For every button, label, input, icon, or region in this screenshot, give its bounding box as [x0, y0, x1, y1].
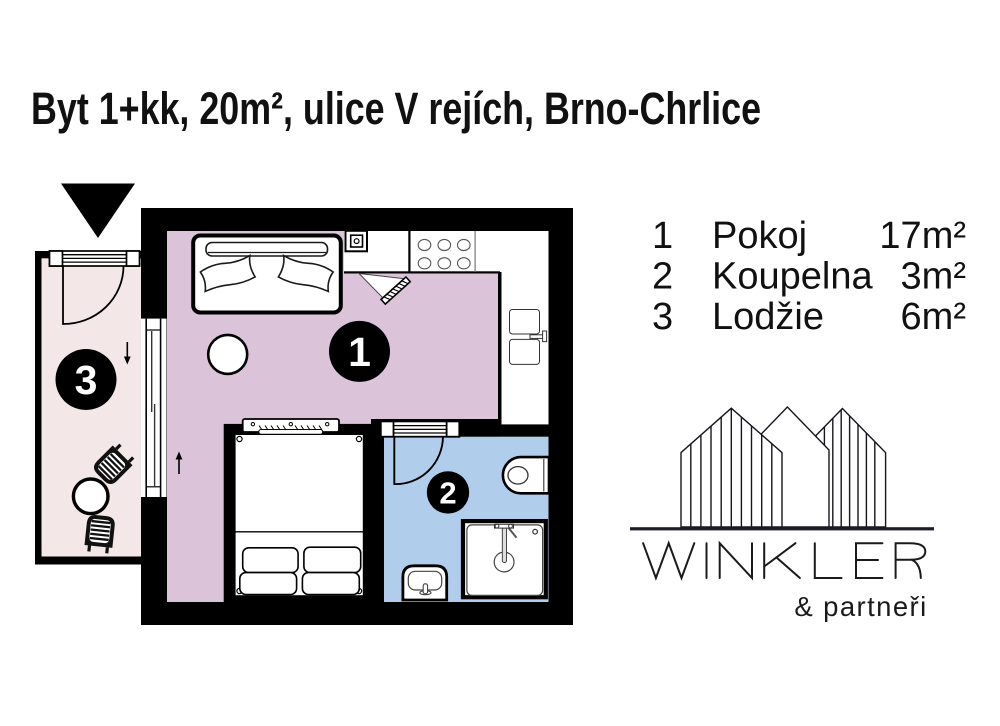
svg-text:3: 3 [75, 357, 98, 403]
svg-text:1: 1 [348, 329, 371, 375]
svg-text:Byt 1+kk, 20m², ulice V rejích: Byt 1+kk, 20m², ulice V rejích, Brno-Chr… [31, 83, 761, 134]
svg-text:2: 2 [652, 255, 673, 297]
svg-text:2: 2 [439, 476, 456, 511]
svg-text:Lodžie: Lodžie [712, 296, 824, 338]
svg-text:Pokoj: Pokoj [712, 215, 807, 257]
svg-text:& partneři: & partneři [794, 591, 927, 622]
svg-text:1: 1 [652, 215, 673, 257]
svg-text:3m²: 3m² [901, 255, 966, 297]
svg-text:Koupelna: Koupelna [712, 255, 873, 297]
svg-text:6m²: 6m² [901, 296, 966, 338]
svg-text:17m²: 17m² [879, 215, 966, 257]
svg-text:3: 3 [652, 296, 673, 338]
